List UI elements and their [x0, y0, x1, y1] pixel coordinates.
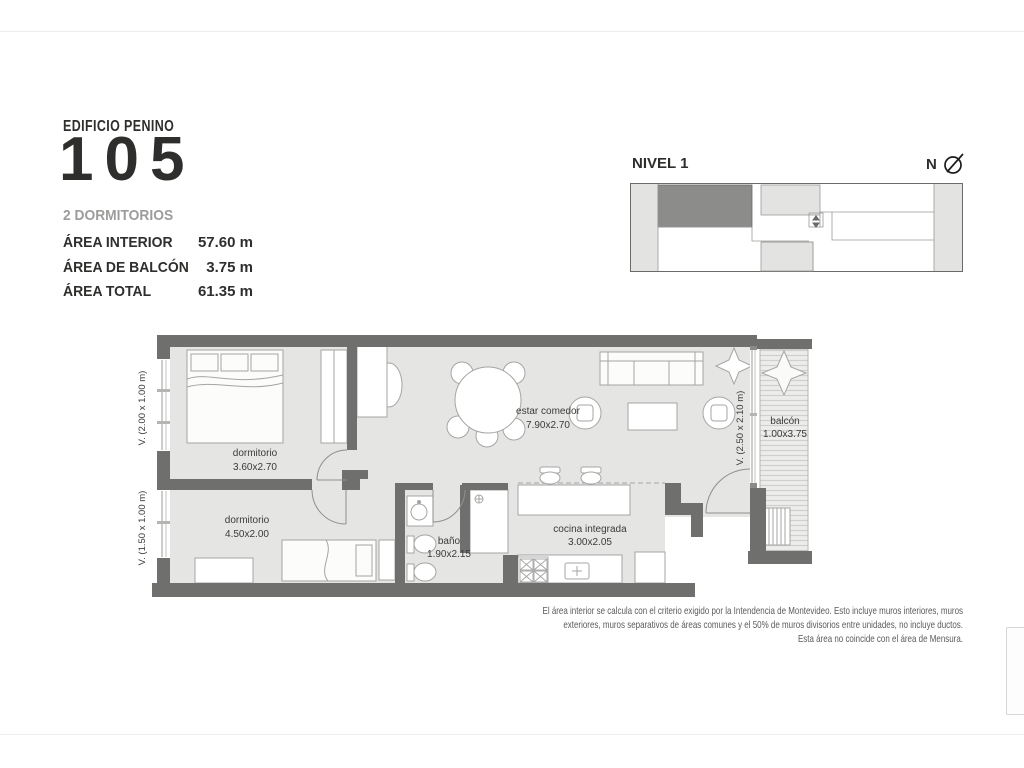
bar-stool — [540, 467, 560, 484]
window-label: V. (1.50 x 1.00 m) — [137, 491, 148, 566]
area-label: ÁREA INTERIOR — [63, 231, 184, 256]
bedrooms-label: 2 DORMITORIOS — [63, 207, 173, 224]
area-row-total: ÁREA TOTAL 61.35 m — [63, 280, 253, 305]
keyplan-highlighted-unit — [658, 185, 752, 227]
coffee-table — [628, 403, 677, 430]
kitchen-island — [518, 485, 630, 515]
cooktop-oven — [518, 557, 548, 583]
area-value: 3.75 m — [193, 256, 253, 281]
unit-number: 105 — [59, 129, 195, 191]
sink-vanity — [407, 496, 433, 526]
fridge — [635, 552, 665, 583]
north-indicator: N — [926, 151, 967, 177]
room-label: dormitorio — [225, 515, 270, 526]
nightstand — [379, 540, 395, 580]
keyplan-left-wing — [631, 184, 658, 271]
room-label: dormitorio — [233, 448, 278, 459]
area-row-interior: ÁREA INTERIOR 57.60 m — [63, 231, 253, 256]
disclaimer-line: El área interior se calcula con el crite… — [477, 605, 963, 619]
keyplan-core-bottom — [761, 242, 813, 271]
area-row-balcon: ÁREA DE BALCÓN 3.75 m — [63, 256, 253, 281]
disclaimer-line: exteriores, muros separativos de áreas c… — [477, 619, 963, 633]
keyplan-diagram — [630, 183, 963, 273]
kitchen-sink — [565, 563, 589, 579]
room-label: balcón — [770, 416, 799, 427]
room-dims: 3.60x2.70 — [233, 462, 277, 473]
window-label: V. (2.00 x 1.00 m) — [137, 371, 148, 446]
window — [157, 490, 170, 558]
dining-set — [447, 362, 525, 447]
floorplan-drawing: dormitorio 3.60x2.70 dormitorio 4.50x2.0… — [125, 333, 815, 605]
room-dims: 7.90x2.70 — [526, 420, 570, 431]
single-bed — [282, 540, 376, 581]
bar-stool — [581, 467, 601, 484]
keyplan-right-wing — [934, 184, 962, 271]
north-arrow-icon — [941, 151, 967, 177]
area-label: ÁREA TOTAL — [63, 280, 184, 305]
disclaimer-line: Esta área no coincide con el área de Men… — [477, 633, 963, 647]
room-dims: 1.90x2.15 — [427, 549, 471, 560]
armchair — [703, 397, 735, 429]
sofa — [600, 352, 703, 385]
window — [157, 359, 170, 451]
room-label: cocina integrada — [553, 524, 627, 535]
level-label: NIVEL 1 — [632, 155, 688, 172]
room-dims: 3.00x2.05 — [568, 537, 612, 548]
window-balcony — [750, 346, 757, 488]
shower — [470, 490, 508, 553]
floorplan-sheet: EDIFICIO PENINO 105 2 DORMITORIOS ÁREA I… — [0, 0, 1024, 768]
room-dims: 1.00x3.75 — [763, 429, 807, 440]
area-value: 57.60 m — [193, 231, 253, 256]
louver-grill — [765, 508, 790, 545]
sheet-top-border — [0, 31, 1024, 32]
area-table: ÁREA INTERIOR 57.60 m ÁREA DE BALCÓN 3.7… — [63, 231, 253, 305]
area-value: 61.35 m — [193, 280, 253, 305]
keyplan-core-top — [761, 185, 820, 215]
room-label: baño — [438, 536, 461, 547]
area-label: ÁREA DE BALCÓN — [63, 256, 184, 281]
sheet-bottom-border — [0, 734, 1024, 735]
wardrobe — [321, 350, 347, 443]
room-label: estar comedor — [516, 406, 581, 417]
desk — [195, 558, 253, 583]
room-dims: 4.50x2.00 — [225, 529, 269, 540]
bidet — [407, 563, 436, 581]
double-bed — [187, 350, 283, 443]
north-label: N — [926, 156, 937, 173]
area-disclaimer: El área interior se calcula con el crite… — [477, 605, 963, 646]
window-label: V. (2.50 x 2.10 m) — [735, 391, 746, 466]
cutoff-thumbnail-box — [1006, 627, 1024, 715]
